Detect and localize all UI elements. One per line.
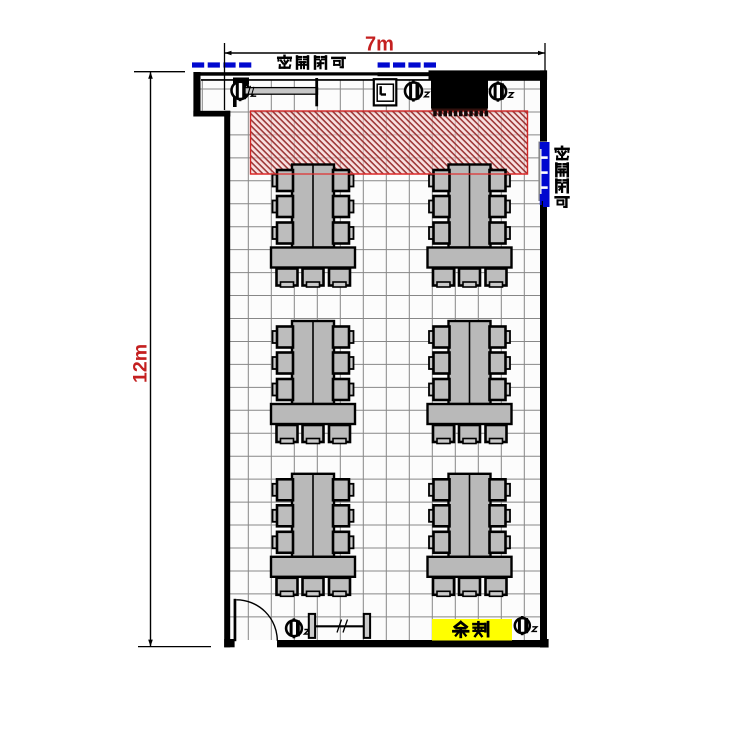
svg-text:7m: 7m <box>365 34 394 56</box>
svg-text:12m: 12m <box>130 344 152 383</box>
